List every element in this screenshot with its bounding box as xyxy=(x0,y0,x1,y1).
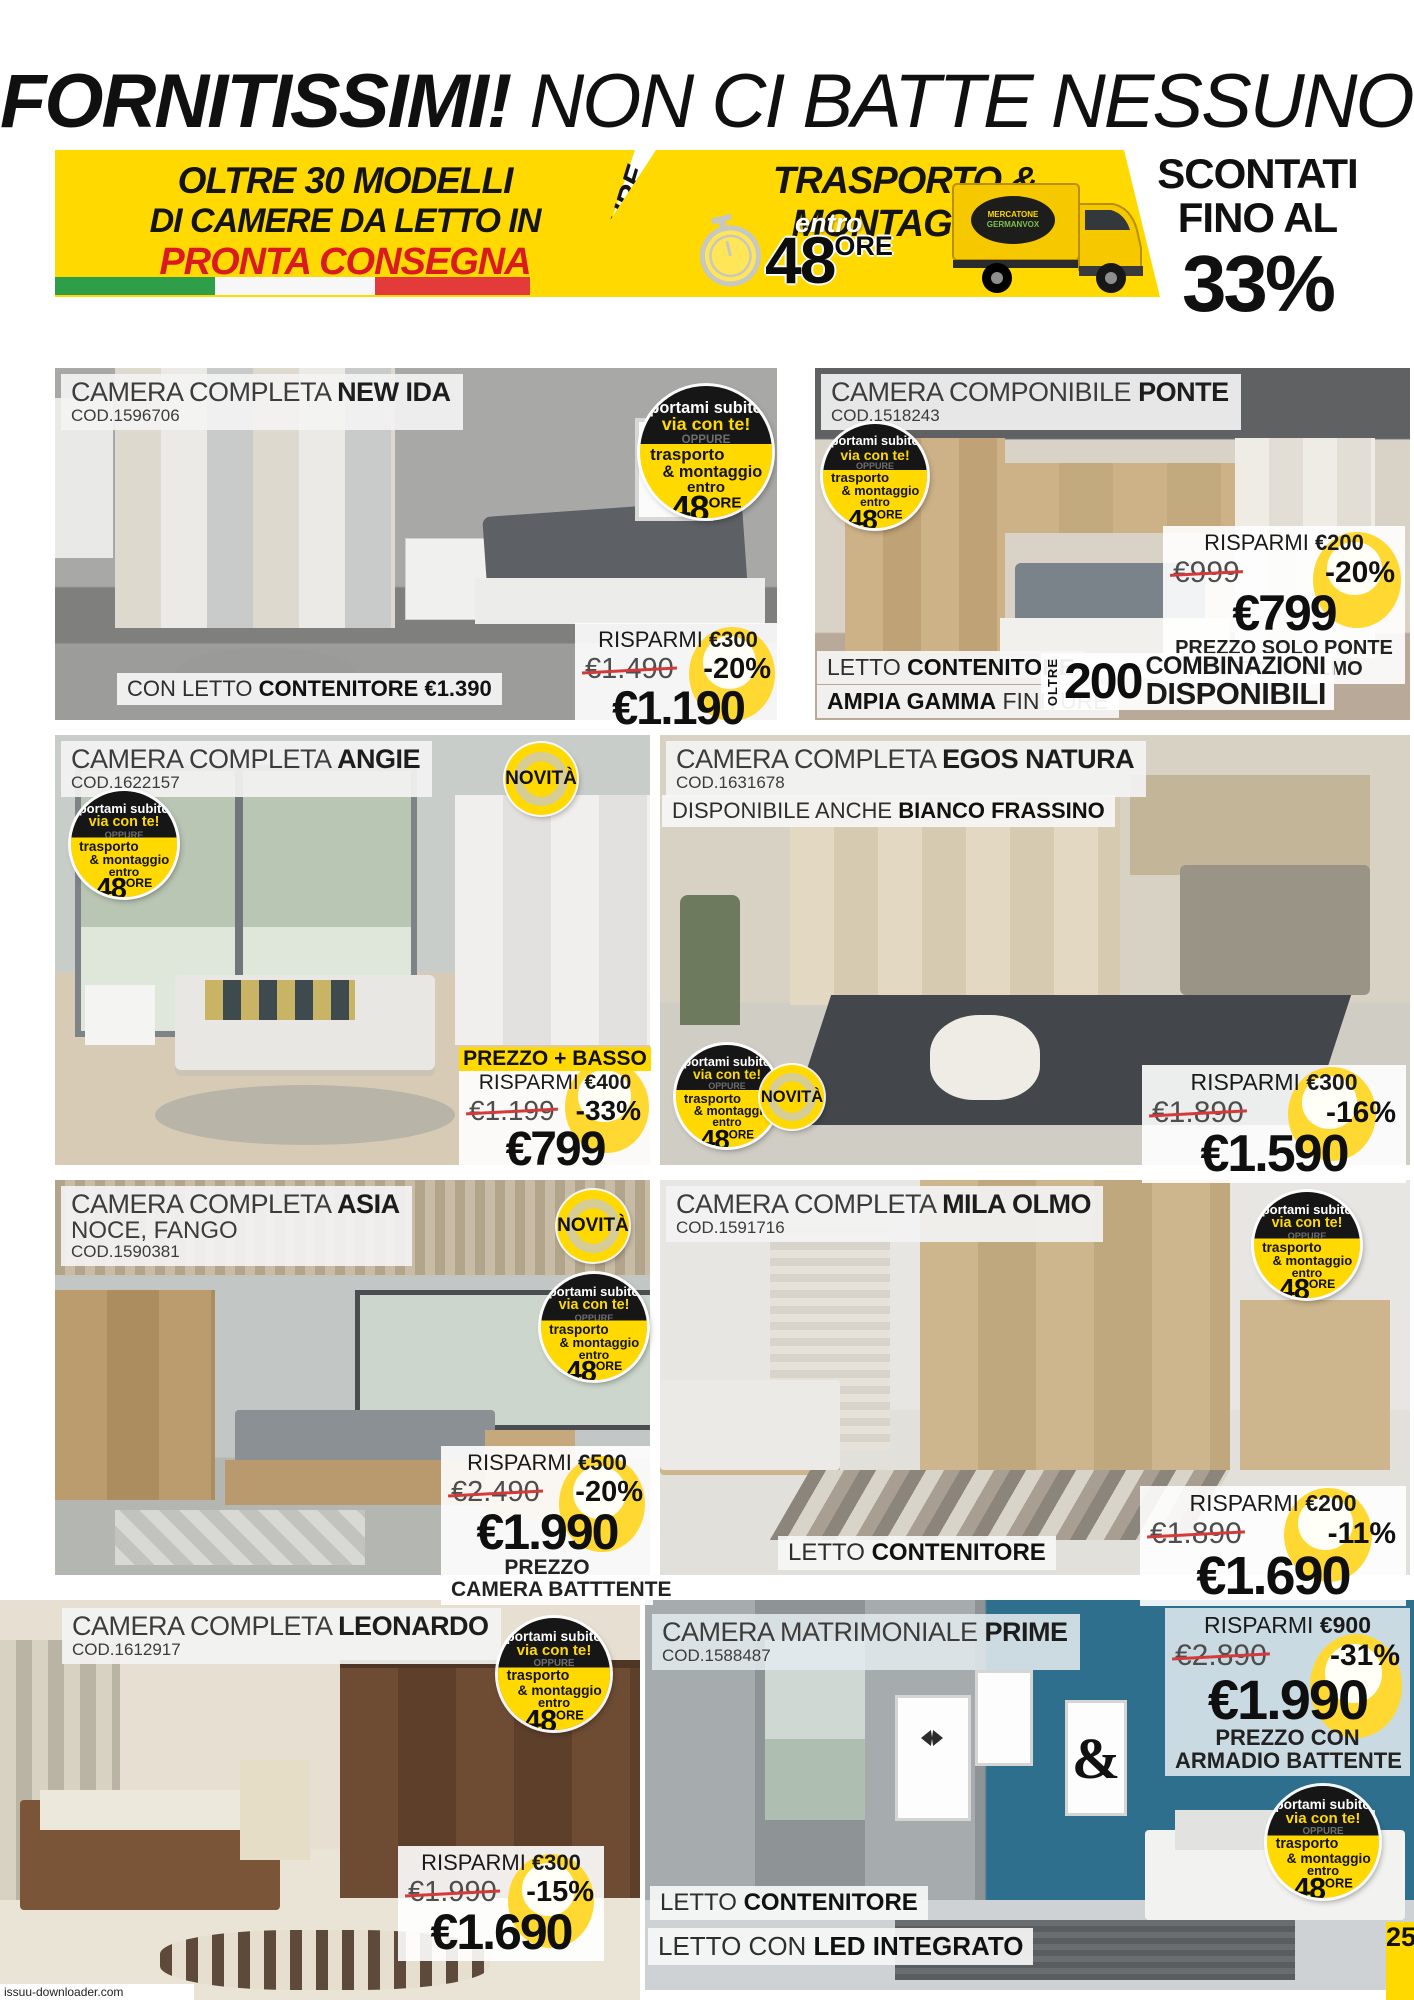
prezzo-basso-bar: PREZZO + BASSO xyxy=(459,1047,651,1071)
combinations-count: 200 xyxy=(1064,659,1141,704)
price-block: RISPARMI €200 €1.890-11% €1.690 xyxy=(1140,1486,1406,1606)
product-name: CAMERA COMPLETA EGOS NATURA xyxy=(676,746,1134,774)
page-title-bold: FORNITISSIMI! xyxy=(0,59,510,144)
page-number: 25 xyxy=(1386,1922,1414,1952)
current-price: €1.690 xyxy=(408,1909,594,1957)
price-block: RISPARMI €500 €2.490-20% €1.990 PREZZOCA… xyxy=(441,1446,653,1605)
watermark: issuu-downloader.com xyxy=(0,1984,194,2000)
svg-text:MERCATONE: MERCATONE xyxy=(988,210,1039,219)
product-code: COD.1622157 xyxy=(71,774,420,791)
card-title: CAMERA MATRIMONIALE PRIME COD.1588487 xyxy=(652,1614,1080,1670)
card-title: CAMERA COMPLETA ASIA NOCE, FANGO COD.159… xyxy=(61,1186,412,1266)
product-code: COD.1588487 xyxy=(662,1647,1068,1664)
current-price: €1.990 xyxy=(451,1509,643,1557)
product-card-ponte[interactable]: CAMERA COMPONIBILE PONTE COD.1518243 por… xyxy=(815,368,1410,720)
product-finish: NOCE, FANGO xyxy=(71,1219,400,1243)
old-price: €999 xyxy=(1173,556,1240,590)
banner-middle: TRASPORTO & MONTAGGIO entro 48ORE MERCAT… xyxy=(560,150,1160,297)
feature-bar: LETTO CON LED INTEGRATO xyxy=(648,1928,1033,1965)
product-card-leonardo[interactable]: CAMERA COMPLETA LEONARDO COD.1612917 por… xyxy=(0,1600,640,2000)
portami-subito-badge: portami subito via con te! OPPURE traspo… xyxy=(1254,1192,1360,1298)
product-code: COD.1596706 xyxy=(71,407,451,424)
price-note: PREZZOCAMERA BATTTENTE xyxy=(451,1557,643,1601)
portami-subito-badge: portami subito via con te! OPPURE traspo… xyxy=(640,386,772,518)
stopwatch-icon xyxy=(690,208,770,292)
availability-bar: DISPONIBILE ANCHE BIANCO FRASSINO xyxy=(662,795,1115,827)
badge-line2: via con te! xyxy=(640,416,772,434)
poster-ampersand: & xyxy=(1065,1700,1127,1816)
current-price: €1.690 xyxy=(1150,1551,1396,1602)
card-title: CAMERA COMPLETA NEW IDA COD.1596706 xyxy=(61,374,463,430)
banner-48-ore: 48ORE xyxy=(765,222,893,298)
delivery-truck-icon: MERCATONE GERMANVOX xyxy=(945,178,1155,298)
banner-right: SCONTATI FINO AL 33% xyxy=(1150,152,1365,324)
product-card-angie[interactable]: CAMERA COMPLETA ANGIE COD.1622157 NOVITÀ… xyxy=(55,735,650,1165)
card-title: CAMERA COMPLETA LEONARDO COD.1612917 xyxy=(62,1608,501,1664)
feature-bar: LETTO CONTENITORE xyxy=(650,1886,928,1920)
current-price: €799 xyxy=(1173,590,1395,638)
page-title: FORNITISSIMI! NON CI BATTE NESSUNO! xyxy=(0,58,1414,145)
product-name: CAMERA MATRIMONIALE PRIME xyxy=(662,1619,1068,1647)
product-card-egos-natura[interactable]: CAMERA COMPLETA EGOS NATURA COD.1631678 … xyxy=(660,735,1410,1165)
price-block: RISPARMI €300 €1.890-16% €1.590 xyxy=(1142,1065,1406,1183)
risparmi-label: RISPARMI €300 xyxy=(585,627,771,653)
combinations-block: OLTRE 200 COMBINAZIONIDISPONIBILI xyxy=(1041,653,1334,710)
svg-text:GERMANVOX: GERMANVOX xyxy=(987,220,1040,229)
italian-flag-red xyxy=(375,277,530,295)
product-code: COD.1591716 xyxy=(676,1219,1091,1236)
novita-badge: NOVITÀ xyxy=(760,1065,824,1129)
novita-badge: NOVITÀ xyxy=(557,1190,629,1262)
price-block: PREZZO + BASSO RISPARMI €400 €1.199-33% … xyxy=(459,1047,651,1177)
price-note: PREZZO CONARMADIO BATTENTE xyxy=(1175,1726,1400,1772)
banner-percent: 33% xyxy=(1150,244,1365,324)
product-code: COD.1631678 xyxy=(676,774,1134,791)
product-code: COD.1590381 xyxy=(71,1243,400,1260)
banner-left: OLTRE 30 MODELLI DI CAMERE DA LETTO IN P… xyxy=(55,150,635,297)
product-card-new-ida[interactable]: CAMERA COMPLETA NEW IDA COD.1596706 port… xyxy=(55,368,777,720)
card-title: CAMERA COMPLETA EGOS NATURA COD.1631678 xyxy=(666,741,1146,797)
page-title-rest: NON CI BATTE NESSUNO! xyxy=(510,59,1414,144)
current-price: €1.590 xyxy=(1152,1130,1396,1179)
flyer-page: FORNITISSIMI! NON CI BATTE NESSUNO! OLTR… xyxy=(0,0,1414,2000)
card-title: CAMERA COMPLETA ANGIE COD.1622157 xyxy=(61,741,432,797)
banner-scontati: SCONTATI xyxy=(1150,152,1365,196)
price-block: RISPARMI €300 €1.490-20% €1.190 xyxy=(575,623,781,735)
portami-subito-badge: portami subito via con te! OPPURE traspo… xyxy=(823,424,927,528)
oltre-label: OLTRE xyxy=(1045,658,1060,706)
product-card-prime[interactable]: & CAMERA MATRIMONIALE PRIME COD.1588487 … xyxy=(645,1600,1414,1990)
banner-left-line1: OLTRE 30 MODELLI xyxy=(55,160,635,202)
page-number-tab: 25 xyxy=(1386,1922,1414,2000)
price-block: RISPARMI €300 €1.990-15% €1.690 xyxy=(398,1846,604,1961)
product-name: CAMERA COMPLETA LEONARDO xyxy=(72,1613,489,1641)
banner-fino-al: FINO AL xyxy=(1150,196,1365,240)
italian-flag-white xyxy=(215,277,375,295)
price-block: RISPARMI €900 €2.890-31% €1.990 PREZZO C… xyxy=(1165,1608,1410,1776)
product-name: CAMERA COMPONIBILE PONTE xyxy=(831,379,1229,407)
banner-left-line2: DI CAMERE DA LETTO IN xyxy=(55,202,635,241)
product-note: CON LETTO CONTENITORE €1.390 xyxy=(117,673,502,705)
italian-flag-green xyxy=(55,277,215,295)
product-name: CAMERA COMPLETA MILA OLMO xyxy=(676,1191,1091,1219)
product-card-asia[interactable]: CAMERA COMPLETA ASIA NOCE, FANGO COD.159… xyxy=(55,1180,650,1575)
product-card-mila-olmo[interactable]: CAMERA COMPLETA MILA OLMO COD.1591716 po… xyxy=(660,1180,1410,1575)
card-title: CAMERA COMPONIBILE PONTE COD.1518243 xyxy=(821,374,1241,430)
card-title: CAMERA COMPLETA MILA OLMO COD.1591716 xyxy=(666,1186,1103,1242)
product-code: COD.1518243 xyxy=(831,407,1229,424)
current-price: €1.190 xyxy=(585,686,771,731)
portami-subito-badge: portami subito via con te! OPPURE traspo… xyxy=(71,791,177,897)
portami-subito-badge: portami subito via con te! OPPURE traspo… xyxy=(498,1618,610,1730)
portami-subito-badge: portami subito via con te! OPPURE traspo… xyxy=(541,1274,647,1380)
product-name: CAMERA COMPLETA NEW IDA xyxy=(71,379,451,407)
product-name: CAMERA COMPLETA ASIA xyxy=(71,1191,400,1219)
product-name: CAMERA COMPLETA ANGIE xyxy=(71,746,420,774)
product-code: COD.1612917 xyxy=(72,1641,489,1658)
portami-subito-badge: portami subito via con te! OPPURE traspo… xyxy=(1267,1786,1379,1898)
current-price: €1.990 xyxy=(1175,1673,1400,1726)
novita-badge: NOVITÀ xyxy=(505,743,577,815)
feature-bar: LETTO CONTENITORE xyxy=(778,1536,1056,1570)
current-price: €799 xyxy=(469,1127,641,1173)
